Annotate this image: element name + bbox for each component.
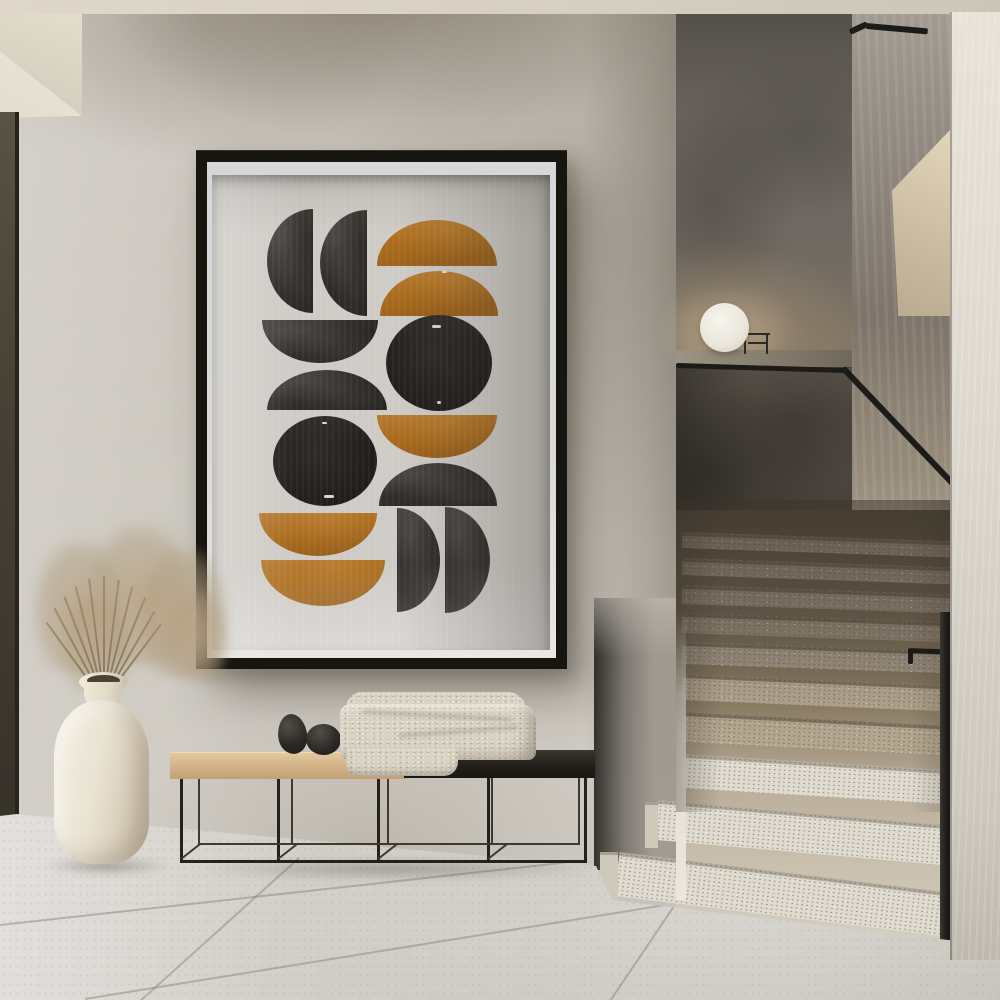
art-paper-fleck	[437, 401, 441, 404]
blanket-drape	[346, 748, 458, 776]
poster-mat	[207, 162, 556, 658]
art-paper-fleck	[442, 271, 447, 273]
art-paper-fleck	[432, 325, 441, 328]
wall-corner-shadow	[594, 598, 680, 870]
art-shape-black-half-up	[267, 370, 387, 410]
bench-shadow	[185, 858, 605, 880]
art-paper-fleck	[324, 495, 334, 498]
stair-landing-ledge	[676, 350, 854, 370]
art-shape-orange-half-down	[261, 560, 385, 606]
door-frame-edge	[15, 112, 19, 818]
staircase-shading	[676, 500, 952, 812]
poster-paper	[212, 175, 550, 650]
art-shape-black-half-right	[397, 508, 440, 612]
art-shape-orange-half-up	[380, 271, 498, 316]
floor-vase	[54, 700, 149, 864]
framed-art-poster	[196, 150, 567, 669]
art-shape-black-half-right	[445, 507, 490, 613]
art-shape-orange-half-down	[259, 513, 377, 556]
art-paper-fleck	[322, 422, 327, 424]
folded-blanket	[340, 692, 536, 778]
art-shape-black-half-left	[320, 210, 367, 316]
art-shape-black-circle	[273, 416, 377, 506]
art-shapes-layer	[212, 175, 550, 650]
right-foreground-wall	[950, 12, 1000, 960]
tile-grout-line	[139, 857, 300, 1000]
art-shape-orange-half-up	[377, 220, 497, 266]
art-shape-orange-half-down	[377, 415, 497, 458]
sphere-lamp	[700, 303, 749, 352]
pampas-plume	[168, 590, 228, 680]
art-shape-black-half-left	[267, 209, 313, 313]
hallway-interior-photo	[0, 0, 1000, 1000]
art-shape-black-half-down	[262, 320, 378, 363]
art-shape-black-half-up	[379, 463, 497, 506]
art-shape-black-circle	[386, 315, 492, 411]
